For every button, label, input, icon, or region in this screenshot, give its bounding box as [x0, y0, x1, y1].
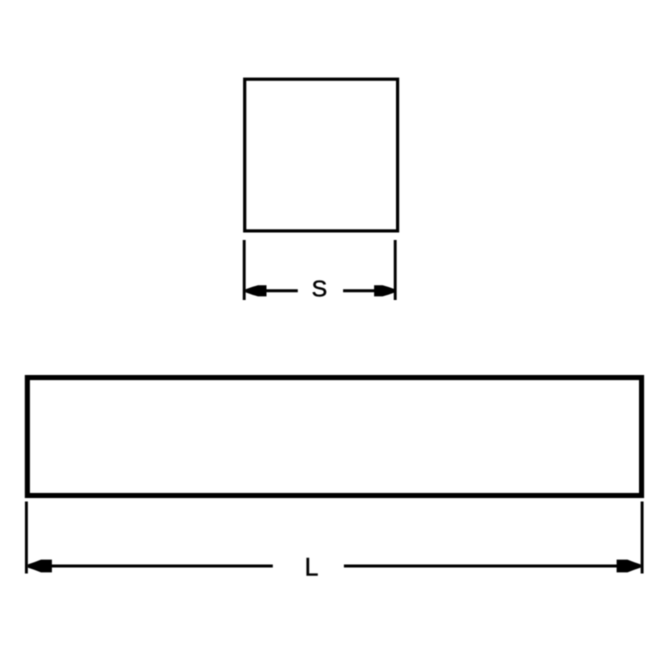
svg-text:L: L	[305, 555, 319, 582]
svg-text:S: S	[312, 276, 328, 302]
